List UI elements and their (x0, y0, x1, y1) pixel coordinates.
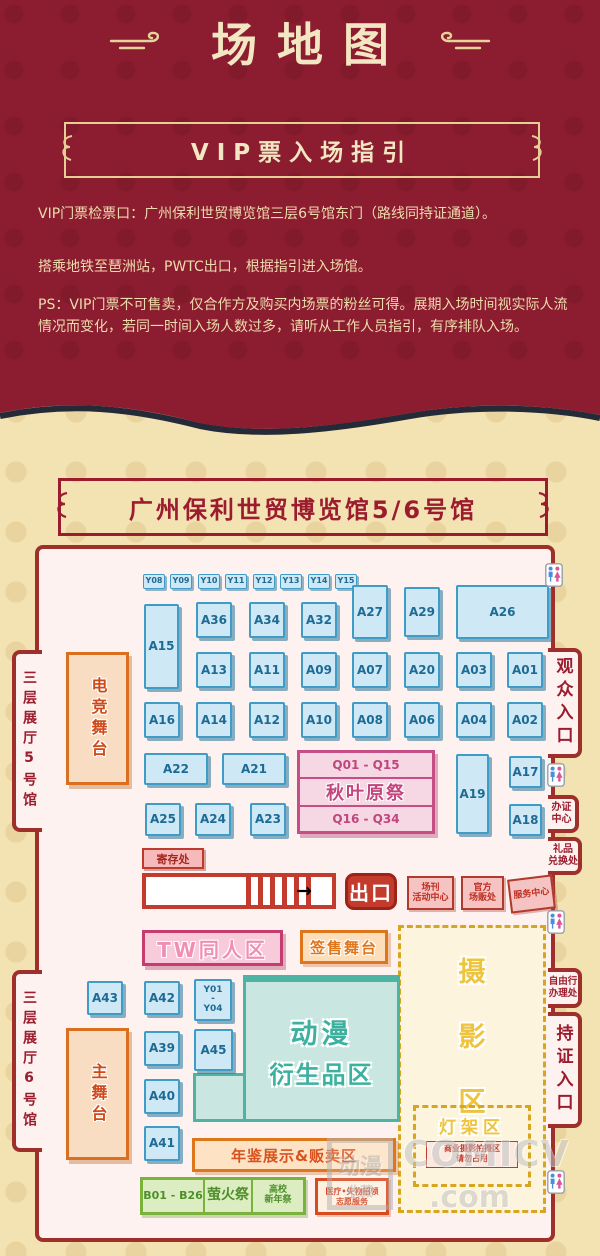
booth-y13: Y13 (280, 574, 302, 589)
hall6-label-tab: 三层展厅6号馆 (12, 970, 42, 1152)
booth-a04: A04 (456, 702, 492, 738)
booth-a32: A32 (301, 602, 337, 638)
badge-center-tab: 办证中心 (548, 795, 579, 833)
booth-a24: A24 (195, 803, 231, 836)
booth-a25: A25 (145, 803, 181, 836)
booth-a15: A15 (144, 604, 179, 689)
restroom-icon (547, 1170, 565, 1194)
walk-in-service-tab: 自由行办理处 (548, 968, 582, 1008)
signing-stage: 签售舞台 (300, 930, 388, 964)
booth-y10: Y10 (198, 574, 220, 589)
venue-title: 广州保利世贸博览馆5/6号馆 (129, 490, 477, 525)
red-ornament-icon (52, 490, 70, 524)
merch-zone-label-2: 衍生品区 (270, 1055, 374, 1090)
akiba-q-bottom: Q16 - Q34 (300, 807, 432, 831)
program-activity-center: 场刊活动中心 (407, 876, 454, 910)
booth-a19: A19 (456, 754, 489, 834)
booth-a21: A21 (222, 753, 286, 785)
vip-guide-title: VIP票入场指引 (191, 133, 413, 167)
booth-a42: A42 (144, 981, 180, 1015)
booth-a43: A43 (87, 981, 123, 1015)
booth-a13: A13 (196, 652, 232, 688)
booth-a08: A08 (352, 702, 388, 738)
booth-a16: A16 (144, 702, 180, 738)
tw-doujin-zone: TW同人区 (142, 930, 283, 966)
booth-a06: A06 (404, 702, 440, 738)
booth-a45: A45 (194, 1029, 233, 1071)
official-merch-stand: 官方场贩处 (461, 876, 504, 910)
gold-ornament-icon (529, 133, 547, 167)
vip-paragraph-1: VIP门票检票口：广州保利世贸博览馆三层6号馆东门（路线同持证通道）。 (38, 203, 570, 225)
page-title: 场地图 (191, 9, 409, 75)
badge-center-label: 办证中心 (552, 802, 572, 826)
booth-a26: A26 (456, 585, 549, 639)
hall5-label: 三层展厅5号馆 (19, 670, 39, 812)
booth-a01: A01 (507, 652, 543, 688)
booth-y12: Y12 (253, 574, 275, 589)
light-rack-zone: 灯架区 商业摄影拍摄区请勿占用 (413, 1105, 531, 1187)
booth-a22: A22 (144, 753, 208, 785)
booth-y08: Y08 (143, 574, 165, 589)
cloud-ornament-left-icon (107, 29, 165, 55)
wave-divider (0, 380, 600, 440)
booth-a14: A14 (196, 702, 232, 738)
light-rack-label: 灯架区 (416, 1113, 528, 1138)
restroom-icon (547, 763, 565, 787)
floor-map: 三层展厅5号馆 三层展厅6号馆 观众入口 办证中心 礼品兑换处 自由行办理处 持… (35, 545, 555, 1242)
photo-zone: 摄 影 区 灯架区 商业摄影拍摄区请勿占用 (398, 925, 546, 1213)
booth-y09: Y09 (170, 574, 192, 589)
header: 场地图 (0, 10, 600, 74)
booth-a18: A18 (509, 804, 542, 836)
audience-entrance-label: 观众入口 (551, 657, 576, 749)
cloud-ornament-right-icon (435, 29, 493, 55)
booth-y11: Y11 (225, 574, 247, 589)
hall5-label-tab: 三层展厅5号馆 (12, 650, 42, 832)
audience-entrance-tab: 观众入口 (548, 648, 582, 758)
booth-a09: A09 (301, 652, 337, 688)
booth-a29: A29 (404, 587, 440, 637)
booth-a40: A40 (144, 1079, 180, 1114)
service-center: 服务中心 (507, 874, 556, 913)
merch-zone: 动漫 衍生品区 (243, 975, 400, 1122)
vip-guide-title-box: VIP票入场指引 (64, 122, 540, 178)
restroom-icon (545, 563, 563, 587)
hall6-label: 三层展厅6号馆 (19, 990, 39, 1132)
gift-exchange-label: 礼品兑换处 (548, 844, 578, 868)
school-newyear-festival: 高校新年祭 (253, 1180, 303, 1212)
pass-holder-entrance-label: 持证入口 (551, 1024, 576, 1116)
booth-a39: A39 (144, 1031, 180, 1066)
booth-a07: A07 (352, 652, 388, 688)
firefly-festival: 萤火祭 (203, 1180, 253, 1212)
b-booth-range: B01 - B26 (143, 1180, 203, 1212)
akiba-title: 秋叶原祭 (300, 777, 432, 807)
booth-a20: A20 (404, 652, 440, 688)
booth-a41: A41 (144, 1126, 180, 1161)
gift-exchange-tab: 礼品兑换处 (548, 837, 582, 875)
b-booth-row: B01 - B26 萤火祭 高校新年祭 (140, 1177, 306, 1215)
aid-service-box: 医疗•失物招领志愿服务 (315, 1178, 389, 1215)
merch-zone-extension (193, 1073, 246, 1122)
locker-area: 寄存处 (142, 848, 204, 869)
akiba-festival-block: Q01 - Q15 秋叶原祭 Q16 - Q34 (297, 750, 435, 834)
booth-a10: A10 (301, 702, 337, 738)
booth-a11: A11 (249, 652, 285, 688)
photo-zone-label: 摄 影 区 (401, 950, 543, 1119)
booth-a23: A23 (250, 803, 286, 836)
main-stage: 主舞台 (66, 1028, 129, 1160)
venue-map-poster: 场地图 VIP票入场指引 VIP门票检票口：广州保利世贸博览馆三层6号馆东门（路… (0, 0, 600, 1256)
pass-holder-entrance-tab: 持证入口 (548, 1012, 582, 1128)
booth-y01-y04: Y01-Y04 (194, 979, 232, 1021)
venue-title-box: 广州保利世贸博览馆5/6号馆 (58, 478, 548, 536)
main-stage-label: 主舞台 (86, 1063, 110, 1126)
right-arrow-icon: → (296, 880, 312, 902)
akiba-q-top: Q01 - Q15 (300, 753, 432, 777)
booth-a02: A02 (507, 702, 543, 738)
exit-sign: 出口 (345, 873, 397, 910)
yearbook-display-zone: 年鉴展示&贩卖区 (192, 1138, 396, 1172)
esports-stage: 电竞舞台 (66, 652, 129, 785)
booth-a27: A27 (352, 585, 388, 639)
esports-stage-label: 电竞舞台 (86, 677, 110, 761)
vip-paragraph-2: 搭乘地铁至琶洲站，PWTC出口，根据指引进入场馆。 (38, 256, 570, 278)
light-rack-note: 商业摄影拍摄区请勿占用 (426, 1141, 518, 1168)
red-ornament-icon (536, 490, 554, 524)
vip-paragraph-3: PS：VIP门票不可售卖，仅合作方及购买内场票的粉丝可得。展期入场时间视实际人流… (38, 294, 570, 339)
restroom-icon (547, 910, 565, 934)
booth-y14: Y14 (308, 574, 330, 589)
booth-a17: A17 (509, 756, 542, 788)
merch-zone-label-1: 动漫 (291, 1012, 353, 1051)
booth-a36: A36 (196, 602, 232, 638)
gold-ornament-icon (57, 133, 75, 167)
exit-corridor: → (142, 873, 336, 909)
booth-a12: A12 (249, 702, 285, 738)
booth-a03: A03 (456, 652, 492, 688)
booth-a34: A34 (249, 602, 285, 638)
walk-in-service-label: 自由行办理处 (549, 976, 578, 1000)
